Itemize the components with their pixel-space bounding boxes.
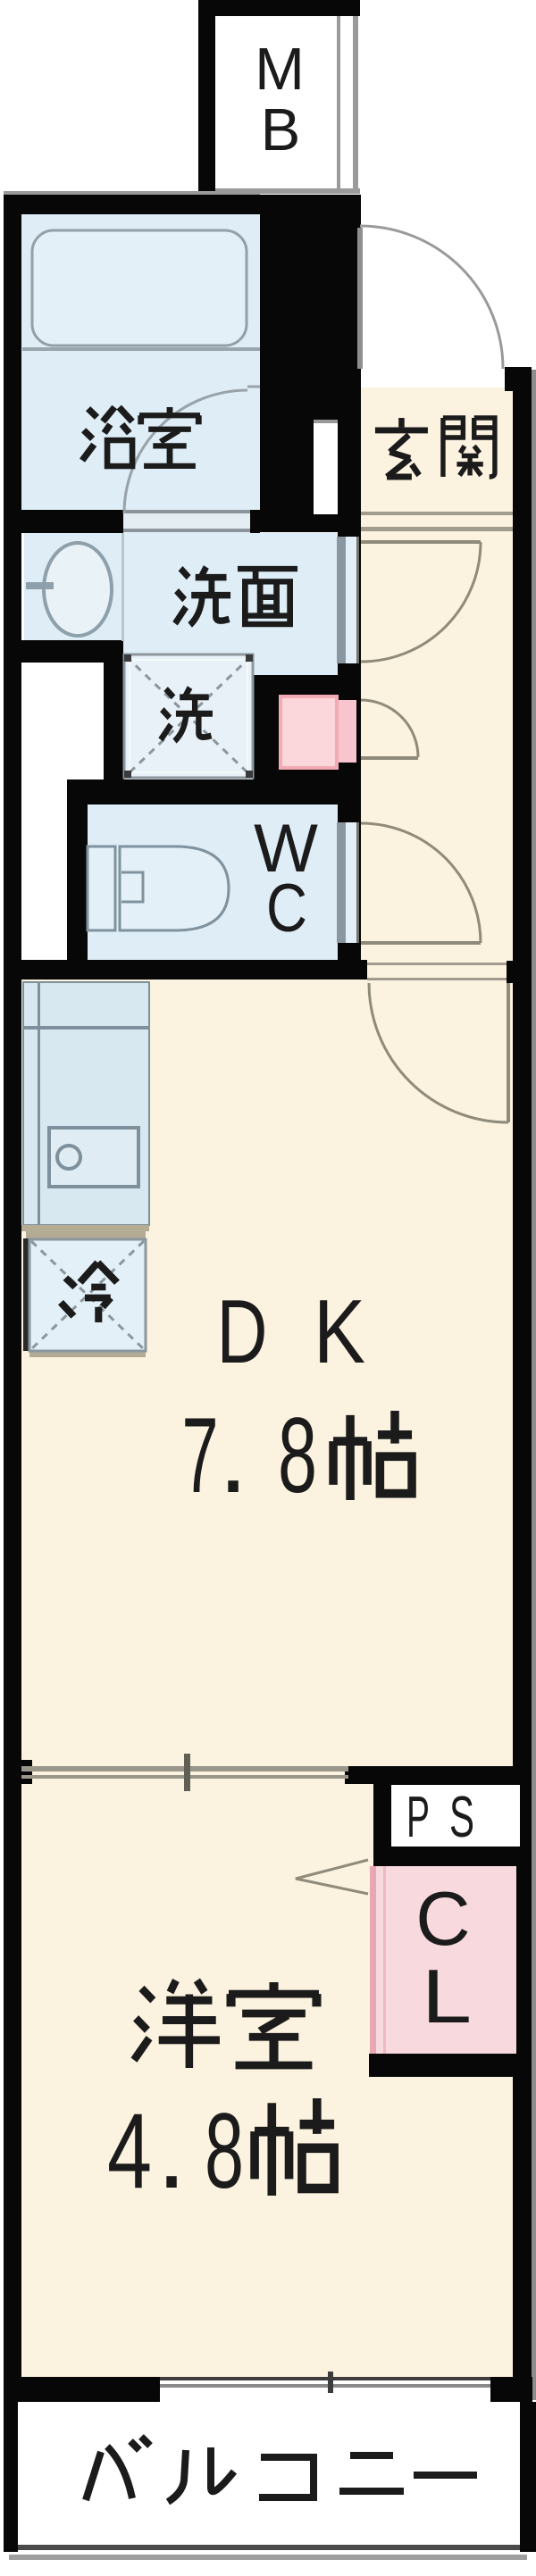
svg-text:8: 8 <box>205 2091 244 2211</box>
svg-text:.: . <box>156 2091 186 2211</box>
svg-text:D: D <box>217 1282 268 1382</box>
svg-text:7: 7 <box>182 1396 219 1515</box>
svg-text:C: C <box>266 871 307 946</box>
svg-text:L: L <box>422 1955 472 2039</box>
svg-text:M: M <box>255 36 305 103</box>
svg-text:C: C <box>415 1877 470 1962</box>
svg-text:4: 4 <box>107 2091 152 2211</box>
svg-text:S: S <box>449 1784 474 1849</box>
svg-text:P: P <box>406 1784 430 1849</box>
svg-text:B: B <box>261 96 301 163</box>
svg-text:8: 8 <box>278 1396 317 1515</box>
svg-text:K: K <box>314 1282 365 1382</box>
svg-text:.: . <box>218 1396 247 1515</box>
